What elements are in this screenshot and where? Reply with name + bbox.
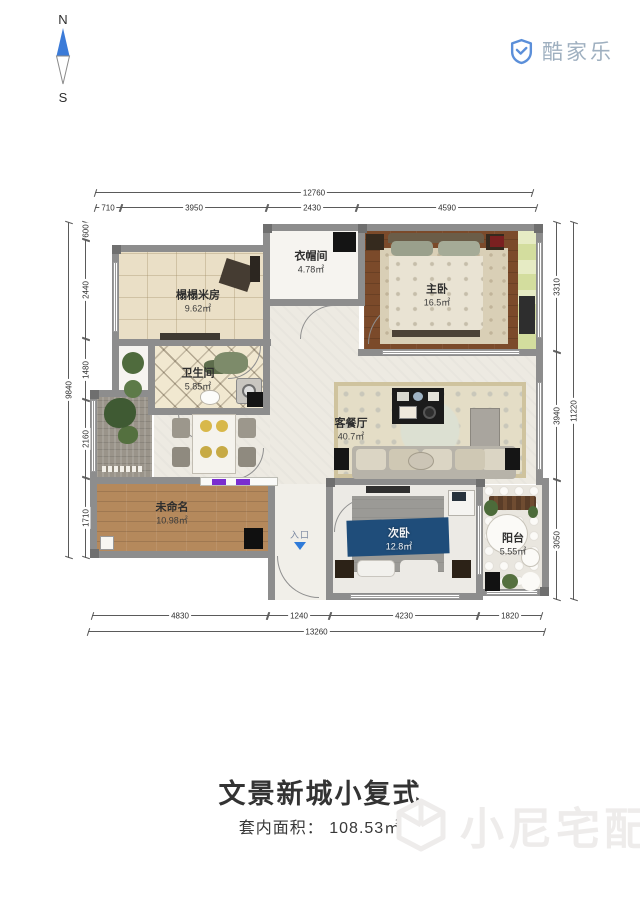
sill-plants xyxy=(122,352,144,374)
wall-segment xyxy=(112,346,119,397)
dim-label: 600 xyxy=(82,222,91,239)
dim-left-seg: 600 xyxy=(85,222,86,240)
wardrobe-dark-section xyxy=(519,296,535,334)
dim-bottom-seg: 4830 xyxy=(92,615,268,616)
room-name: 未命名 xyxy=(156,502,189,516)
room-area: 9.62㎡ xyxy=(176,303,220,314)
window xyxy=(477,505,482,575)
dim-label: 2440 xyxy=(82,279,91,301)
window xyxy=(537,382,542,470)
dim-bottom-seg: 1240 xyxy=(268,615,330,616)
dim-right-seg: 3940 xyxy=(556,352,557,480)
dim-label: 1240 xyxy=(288,612,310,621)
wall-segment xyxy=(90,551,275,558)
dim-bottom-seg: 1820 xyxy=(478,615,542,616)
column xyxy=(90,549,99,558)
dim-label: 9840 xyxy=(65,379,74,401)
dim-label: 3050 xyxy=(553,529,562,551)
room-area: 16.5㎡ xyxy=(424,297,451,308)
dim-bottom-seg: 4230 xyxy=(330,615,478,616)
window xyxy=(382,350,520,355)
dim-top-seg: 3950 xyxy=(121,207,267,208)
second-shelf-decor xyxy=(452,492,466,501)
nightstand xyxy=(335,560,354,578)
bed-pillow xyxy=(391,241,433,256)
column xyxy=(534,224,543,233)
entrance-marker: 入口 xyxy=(282,528,318,550)
dim-label: 3950 xyxy=(183,204,205,213)
wall-segment xyxy=(112,339,271,346)
dim-right-seg: 3050 xyxy=(556,480,557,600)
kujiale-logo-text: 酷家乐 xyxy=(542,36,614,66)
column xyxy=(263,224,272,233)
bath-counter xyxy=(247,392,263,407)
table-setting xyxy=(200,420,212,432)
second-bed-pillows xyxy=(357,560,395,577)
wall-segment xyxy=(326,478,333,600)
room-name: 主卧 xyxy=(424,284,451,298)
wall-segment xyxy=(358,224,365,306)
room-name: 次卧 xyxy=(386,528,413,542)
dim-label: 4830 xyxy=(169,612,191,621)
dim-top-seg: 710 xyxy=(95,207,121,208)
column xyxy=(540,587,549,596)
dining-chairs-left xyxy=(172,418,190,438)
watermark: 小尼宅配 xyxy=(392,793,640,857)
nightstand xyxy=(452,560,471,578)
photo-frame xyxy=(399,406,417,419)
dim-label: 2160 xyxy=(82,428,91,450)
dim-top-total: 12760 xyxy=(95,192,533,193)
window xyxy=(113,262,118,332)
photo-frame xyxy=(397,392,409,401)
entrance-label: 入口 xyxy=(282,528,318,541)
dim-left-seg: 1710 xyxy=(85,478,86,558)
bath-plant xyxy=(214,352,248,374)
dim-right-seg: 3310 xyxy=(556,222,557,352)
balcony-pot xyxy=(485,572,500,591)
wall-segment xyxy=(112,245,270,252)
room-area: 4.78㎡ xyxy=(295,264,328,275)
dim-left-seg: 1480 xyxy=(85,339,86,400)
balcony-plants xyxy=(484,500,498,516)
wall-segment xyxy=(326,478,483,485)
bed-bench xyxy=(392,330,480,337)
dim-label: 1710 xyxy=(82,507,91,529)
watermark-text: 小尼宅配 xyxy=(460,793,640,857)
dining-table xyxy=(192,414,236,474)
dim-label: 710 xyxy=(99,204,116,213)
compass-needle-icon xyxy=(52,27,74,85)
unnamed-cabinet xyxy=(244,528,263,549)
wall-segment xyxy=(90,478,97,558)
dim-label: 4590 xyxy=(436,204,458,213)
bedroom-decor xyxy=(490,236,504,247)
column xyxy=(476,478,485,487)
kujiale-logo: 酷家乐 xyxy=(508,36,614,66)
column xyxy=(90,390,99,399)
dim-label: 13260 xyxy=(303,628,329,637)
tatami-step xyxy=(160,333,220,340)
room-label-bathroom: 卫生间 5.85㎡ xyxy=(182,368,215,393)
dim-left-seg: 2160 xyxy=(85,400,86,478)
speaker xyxy=(505,448,520,470)
dim-label: 3940 xyxy=(553,405,562,427)
room-label-unnamed: 未命名 10.98㎡ xyxy=(156,502,189,527)
room-label-second: 次卧 12.8㎡ xyxy=(386,528,413,553)
room-name: 榻榻米房 xyxy=(176,290,220,304)
dim-bottom-total: 13260 xyxy=(88,631,545,632)
dim-top-seg: 2430 xyxy=(267,207,357,208)
dim-label: 1820 xyxy=(499,612,521,621)
window xyxy=(350,594,460,599)
window xyxy=(537,242,542,338)
dining-chairs-right xyxy=(238,418,256,438)
dim-left-total: 9840 xyxy=(68,222,69,558)
unnamed-frame xyxy=(100,536,114,550)
wall-segment xyxy=(263,224,270,346)
dim-left-seg: 2440 xyxy=(85,240,86,339)
window xyxy=(91,400,96,472)
deck-plant xyxy=(104,398,136,428)
room-label-living: 客餐厅 40.7㎡ xyxy=(335,418,368,443)
room-area: 5.55㎡ xyxy=(500,546,527,557)
room-name: 卫生间 xyxy=(182,368,215,382)
speaker-cone xyxy=(423,406,436,419)
room-area: 10.98㎡ xyxy=(156,515,189,526)
speaker xyxy=(334,448,349,470)
compass-north-label: N xyxy=(50,12,76,27)
room-label-cloakroom: 衣帽间 4.78㎡ xyxy=(295,251,328,276)
dim-right-total: 11220 xyxy=(573,222,574,600)
compass: N S xyxy=(50,12,76,105)
dim-label: 11220 xyxy=(570,398,579,424)
wall-segment xyxy=(268,478,275,600)
room-label-balcony: 阳台 5.55㎡ xyxy=(500,533,527,558)
wall-segment xyxy=(90,390,152,397)
wall-segment xyxy=(263,224,543,231)
deck-slats xyxy=(102,466,142,472)
kujiale-logo-icon xyxy=(508,38,535,65)
wall-segment xyxy=(542,478,549,596)
dim-label: 1480 xyxy=(82,359,91,381)
coffee-table xyxy=(408,452,434,470)
column xyxy=(326,478,335,487)
room-name: 客餐厅 xyxy=(335,418,368,432)
room-area: 12.8㎡ xyxy=(386,541,413,552)
wall-segment xyxy=(148,339,155,415)
dim-label: 2430 xyxy=(301,204,323,213)
room-label-master: 主卧 16.5㎡ xyxy=(424,284,451,309)
room-area: 40.7㎡ xyxy=(335,431,368,442)
compass-south-label: S xyxy=(50,90,76,105)
dim-label: 12760 xyxy=(301,189,327,198)
bed-pillow xyxy=(438,241,480,256)
wall-segment xyxy=(263,339,270,415)
cloak-cabinet xyxy=(333,232,356,252)
tatami-cabinet xyxy=(250,256,260,282)
dim-label: 3310 xyxy=(553,276,562,298)
column xyxy=(112,245,121,254)
dim-top-seg: 4590 xyxy=(357,207,537,208)
cube-watermark-icon xyxy=(392,796,450,854)
sofa-cushions xyxy=(356,449,386,470)
photo-frame xyxy=(428,392,439,401)
console-decor xyxy=(212,479,226,485)
entrance-arrow-icon xyxy=(294,542,306,550)
room-area: 5.85㎡ xyxy=(182,381,215,392)
column xyxy=(358,224,367,233)
nightstand xyxy=(366,234,384,250)
wall-segment xyxy=(263,299,365,306)
room-label-tatami: 榻榻米房 9.62㎡ xyxy=(176,290,220,315)
second-wall-tv xyxy=(366,486,410,493)
wall-clock xyxy=(413,392,423,401)
dim-label: 4230 xyxy=(393,612,415,621)
room-name: 阳台 xyxy=(500,533,527,547)
balcony-plant-small xyxy=(502,574,518,589)
room-name: 衣帽间 xyxy=(295,251,328,265)
